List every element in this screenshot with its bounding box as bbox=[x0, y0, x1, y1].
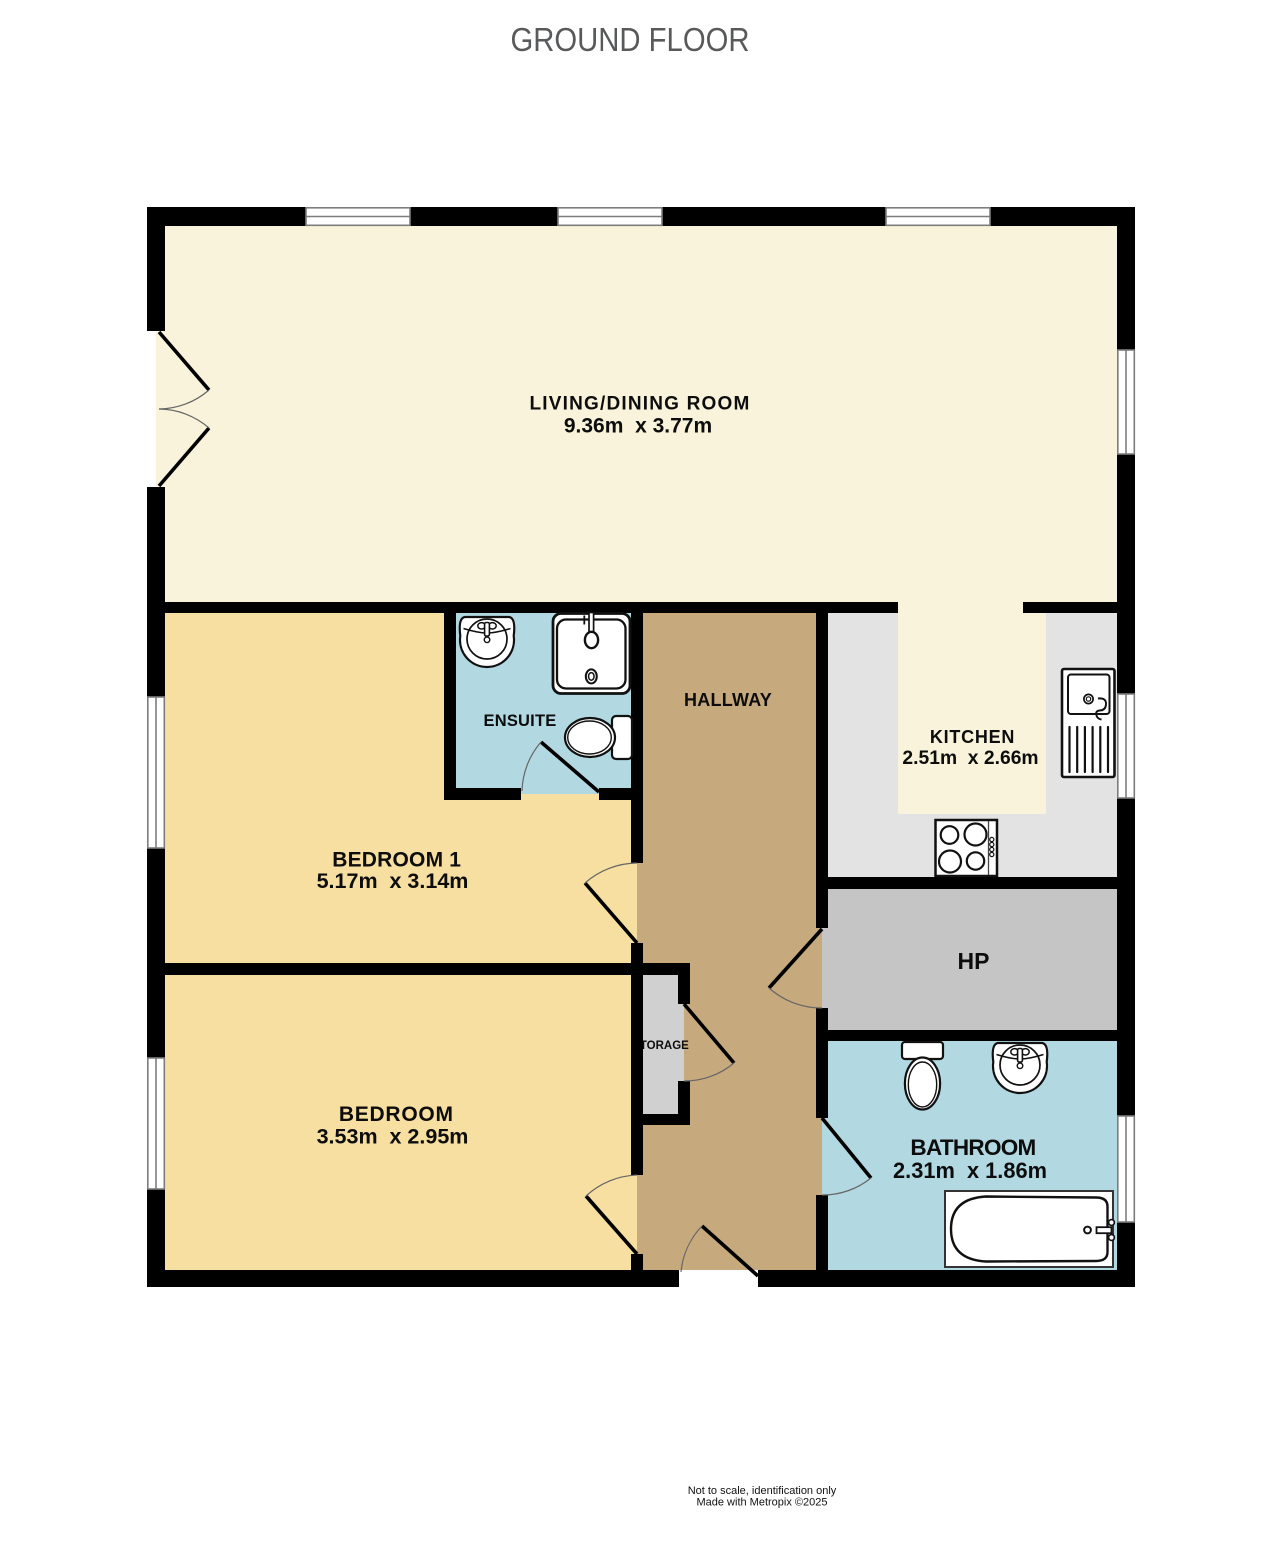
svg-text:2.31m x 1.86m: 2.31m x 1.86m bbox=[893, 1158, 1047, 1183]
svg-text:BEDROOM: BEDROOM bbox=[339, 1103, 454, 1126]
svg-text:Made with Metropix ©2025: Made with Metropix ©2025 bbox=[696, 1497, 827, 1509]
svg-text:ENSUITE: ENSUITE bbox=[484, 712, 557, 730]
svg-text:KITCHEN: KITCHEN bbox=[930, 727, 1015, 747]
svg-text:LIVING/DINING ROOM: LIVING/DINING ROOM bbox=[529, 394, 750, 415]
svg-text:BEDROOM 1: BEDROOM 1 bbox=[332, 848, 461, 871]
svg-text:BATHROOM: BATHROOM bbox=[910, 1135, 1035, 1160]
svg-text:HALLWAY: HALLWAY bbox=[684, 690, 772, 710]
svg-text:2.51m x 2.66m: 2.51m x 2.66m bbox=[902, 748, 1038, 769]
svg-text:9.36m x 3.77m: 9.36m x 3.77m bbox=[564, 415, 712, 438]
svg-text:5.17m x 3.14m: 5.17m x 3.14m bbox=[317, 869, 469, 893]
svg-text:Not to scale, identification o: Not to scale, identification only bbox=[688, 1485, 837, 1497]
svg-text:3.53m x 2.95m: 3.53m x 2.95m bbox=[317, 1125, 469, 1149]
svg-text:GROUND FLOOR: GROUND FLOOR bbox=[511, 22, 750, 59]
svg-text:HP: HP bbox=[958, 948, 990, 974]
